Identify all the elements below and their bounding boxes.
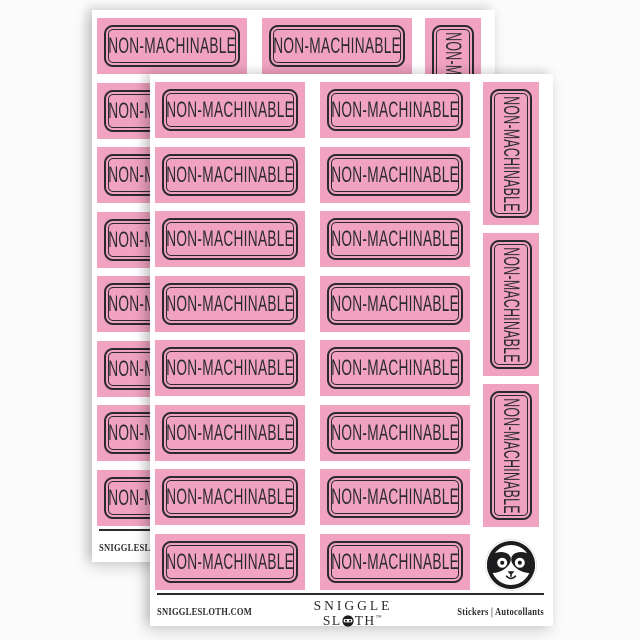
non-machinable-sticker: NON-MACHINABLE (155, 469, 305, 525)
sticker-border: NON-MACHINABLE (490, 240, 532, 369)
non-machinable-sticker: NON-MACHINABLE (155, 340, 305, 396)
non-machinable-sticker: NON-MACHINABLE (155, 211, 305, 267)
non-machinable-sticker-vertical: NON-MACHINABLE (483, 82, 539, 225)
sticker-label: NON-MACHINABLE (331, 551, 459, 573)
sticker-border: NON-MACHINABLE (162, 283, 298, 325)
non-machinable-sticker: NON-MACHINABLE (320, 534, 470, 590)
sticker-border: NON-MACHINABLE (327, 541, 463, 583)
footer-language-label: Stickers | Autocollants (457, 607, 544, 618)
non-machinable-sticker: NON-MACHINABLE (155, 276, 305, 332)
sticker-label: NON-MACHINABLE (331, 228, 459, 250)
sticker-label: NON-MACHINABLE (500, 247, 522, 363)
sticker-sheet-front: NON-MACHINABLENON-MACHINABLENON-MACHINAB… (150, 74, 553, 626)
non-machinable-sticker: NON-MACHINABLE (320, 82, 470, 138)
sticker-border: NON-MACHINABLE (327, 154, 463, 196)
sticker-label: NON-MACHINABLE (166, 293, 294, 315)
sticker-border: NON-MACHINABLE (327, 283, 463, 325)
sticker-label: NON-MACHINABLE (273, 35, 401, 57)
sticker-border: NON-MACHINABLE (162, 89, 298, 131)
sticker-border: NON-MACHINABLE (490, 391, 532, 520)
non-machinable-sticker: NON-MACHINABLE (320, 405, 470, 461)
sloth-face-icon (485, 539, 537, 591)
sticker-label: NON-MACHINABLE (331, 486, 459, 508)
sticker-border: NON-MACHINABLE (162, 154, 298, 196)
footer-divider (157, 593, 544, 595)
sticker-label: NON-MACHINABLE (166, 551, 294, 573)
sticker-border: NON-MACHINABLE (162, 541, 298, 583)
non-machinable-sticker-vertical: NON-MACHINABLE (483, 233, 539, 376)
sticker-label: NON-MACHINABLE (500, 96, 522, 212)
sticker-border: NON-MACHINABLE (162, 476, 298, 518)
sticker-label: NON-MACHINABLE (166, 486, 294, 508)
non-machinable-sticker: NON-MACHINABLE (155, 82, 305, 138)
sticker-border: NON-MACHINABLE (490, 89, 532, 218)
non-machinable-sticker: NON-MACHINABLE (97, 18, 247, 74)
sticker-border: NON-MACHINABLE (327, 347, 463, 389)
sticker-label: NON-MACHINABLE (331, 293, 459, 315)
non-machinable-sticker: NON-MACHINABLE (320, 469, 470, 525)
sticker-label: NON-MACHINABLE (166, 99, 294, 121)
non-machinable-sticker-vertical: NON-MACHINABLE (483, 384, 539, 527)
sticker-label: NON-MACHINABLE (331, 164, 459, 186)
sticker-label: NON-MACHINABLE (166, 228, 294, 250)
product-photo: NON-MACHINABLENON-MACHINABLENON-MACHINAB… (0, 0, 640, 640)
non-machinable-sticker: NON-MACHINABLE (262, 18, 412, 74)
sticker-label: NON-MACHINABLE (331, 422, 459, 444)
sticker-label: NON-MACHINABLE (331, 99, 459, 121)
non-machinable-sticker: NON-MACHINABLE (155, 534, 305, 590)
sticker-border: NON-MACHINABLE (104, 25, 240, 67)
sticker-border: NON-MACHINABLE (269, 25, 405, 67)
sticker-border: NON-MACHINABLE (162, 218, 298, 260)
sticker-label: NON-MACHINABLE (166, 357, 294, 379)
sticker-border: NON-MACHINABLE (327, 218, 463, 260)
sloth-face-logo (485, 539, 537, 591)
sticker-border: NON-MACHINABLE (327, 89, 463, 131)
sticker-label: NON-MACHINABLE (166, 422, 294, 444)
non-machinable-sticker: NON-MACHINABLE (320, 276, 470, 332)
brand-line2-prefix: SL (323, 613, 342, 628)
sticker-border: NON-MACHINABLE (327, 412, 463, 454)
sticker-label: NON-MACHINABLE (500, 398, 522, 514)
sticker-label: NON-MACHINABLE (331, 357, 459, 379)
non-machinable-sticker: NON-MACHINABLE (320, 147, 470, 203)
sticker-border: NON-MACHINABLE (162, 412, 298, 454)
mini-sloth-o-icon (342, 615, 354, 627)
non-machinable-sticker: NON-MACHINABLE (155, 147, 305, 203)
non-machinable-sticker: NON-MACHINABLE (320, 211, 470, 267)
non-machinable-sticker: NON-MACHINABLE (320, 340, 470, 396)
sticker-label: NON-MACHINABLE (166, 164, 294, 186)
brand-line2-suffix: TH (355, 613, 376, 628)
non-machinable-sticker: NON-MACHINABLE (155, 405, 305, 461)
sticker-label: NON-MACHINABLE (108, 35, 236, 57)
sticker-border: NON-MACHINABLE (162, 347, 298, 389)
trademark-symbol: ™ (376, 615, 382, 621)
sticker-border: NON-MACHINABLE (327, 476, 463, 518)
